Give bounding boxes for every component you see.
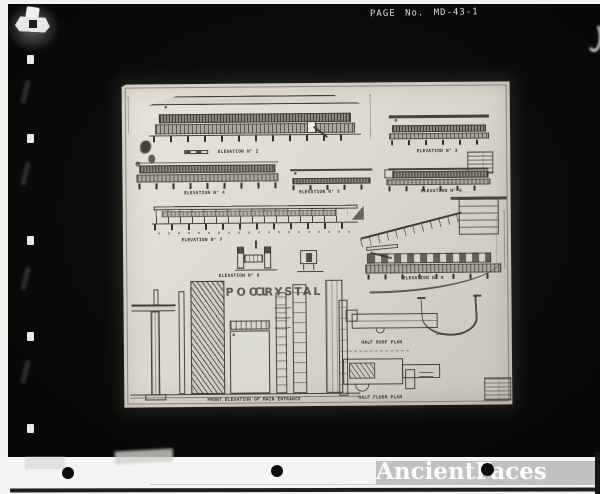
- sign-band: [244, 254, 263, 262]
- scan-edge-bar: [10, 487, 598, 492]
- column-feet: [391, 140, 487, 146]
- title-block: [484, 377, 511, 400]
- light-glare: [586, 22, 600, 52]
- punch-hole: [271, 465, 283, 477]
- wall-band: [386, 178, 490, 185]
- elevation-4-label: ELEVATION N° 4: [172, 190, 238, 195]
- elevation-2-label: ELEVATION N° 2: [205, 149, 271, 154]
- pier: [275, 292, 287, 393]
- smudge: [25, 457, 65, 469]
- roof-line: [136, 161, 278, 163]
- scanner-bed-strip: AncientFaces: [0, 457, 600, 494]
- column-feet: [154, 223, 358, 231]
- elevation-5-drawing: [290, 169, 372, 192]
- floor-plan-walls: [349, 362, 375, 378]
- entrance-caption: FRONT ELEVATION OF MAIN ENTRANCE: [207, 397, 295, 402]
- clerestory-row: [294, 172, 368, 178]
- half-roof-plan-label: HALF ROOF PLAN: [349, 340, 415, 345]
- flag-pole: [255, 241, 257, 249]
- dimension-ticks: [158, 231, 354, 235]
- wall-band: [136, 173, 278, 182]
- elevation-7-label: ELEVATION N° 7: [169, 238, 235, 243]
- post: [178, 291, 185, 394]
- film-hanger-clip-notch: [29, 20, 37, 28]
- film-edge-print: [20, 360, 31, 384]
- transom-window: [230, 320, 270, 329]
- tower: [459, 198, 499, 234]
- entrance-doors: [230, 330, 271, 393]
- film-edge-mark: [27, 55, 34, 64]
- film-edge-mark: [27, 236, 34, 245]
- detail-drawing: [297, 247, 323, 272]
- pylon: [264, 246, 271, 268]
- scan-edge-right: [595, 452, 600, 494]
- column: [151, 311, 161, 395]
- window-band: [392, 171, 488, 179]
- clerestory-window: [395, 119, 397, 121]
- elevation-6-label: ELEVATION N° 6: [409, 188, 475, 193]
- drawing-sheet: ELEVATION N° 2 ELEVATION N° 3 ELEVATION …: [122, 81, 513, 407]
- elevation-8-label: ELEVATION N° 8: [206, 273, 272, 278]
- detail-leg: [303, 264, 304, 270]
- punch-hole: [62, 467, 74, 479]
- handwritten-page-number: PAGE No. MD-43-1: [370, 7, 510, 23]
- film-negative: PAGE No. MD-43-1: [8, 4, 600, 457]
- column-feet: [138, 182, 276, 189]
- roof-outline: [149, 95, 361, 106]
- watermark-text: AncientFaces: [376, 461, 547, 484]
- wall-band: [155, 123, 355, 135]
- clerestory-window: [165, 106, 167, 108]
- film-edge-mark: [27, 332, 34, 341]
- smudge: [115, 448, 174, 464]
- elevation-7-drawing: [152, 205, 364, 237]
- film-edge-mark: [27, 424, 34, 433]
- film-edge-print: [20, 267, 31, 291]
- punch-hole: [481, 463, 494, 476]
- pencil-mark: [148, 75, 157, 82]
- elevation-3-label: ELEVATION N° 3: [404, 148, 470, 153]
- film-edge-print: [20, 80, 31, 104]
- post-detail: [405, 369, 415, 389]
- entrance-pylon: [190, 281, 225, 394]
- elevation-5-label: ELEVATION N° 5: [287, 189, 353, 194]
- wall-band: [389, 132, 489, 139]
- door-pane: [233, 334, 235, 336]
- window-band: [292, 178, 370, 185]
- clerestory-window: [294, 172, 296, 174]
- elevation-4-drawing: [136, 161, 278, 189]
- gable-end: [352, 206, 364, 220]
- window-band: [159, 113, 351, 124]
- elevation-8-drawing: [235, 240, 277, 270]
- elevation-2-drawing: [149, 95, 361, 145]
- elevation-9-label: ELEVATION N° 9: [390, 276, 456, 281]
- dimension-line: [504, 210, 506, 268]
- pier: [292, 284, 307, 393]
- window-band: [392, 125, 486, 133]
- curve-lip: [473, 295, 481, 297]
- film-edge-mark: [27, 134, 34, 143]
- clerestory-row: [395, 119, 483, 125]
- main-entrance-elevation: CRYSTAL POOL: [178, 280, 351, 397]
- ramp-railing: [360, 213, 463, 248]
- window-band: [139, 164, 275, 173]
- post: [153, 289, 158, 305]
- detail-leg: [313, 264, 314, 270]
- sign-line-2: POOL: [225, 286, 271, 298]
- curve-lip: [417, 297, 425, 299]
- elevation-3-drawing: [389, 114, 489, 145]
- scanned-negative-photo: PAGE No. MD-43-1: [0, 0, 600, 494]
- half-floor-plan-label: HALF FLOOR PLAN: [347, 395, 413, 400]
- section-detail: [131, 289, 176, 401]
- corner-stain: [116, 78, 126, 87]
- detail-opening: [306, 253, 312, 262]
- post-detail-caption-lines: [419, 372, 433, 377]
- film-edge-print: [20, 162, 31, 186]
